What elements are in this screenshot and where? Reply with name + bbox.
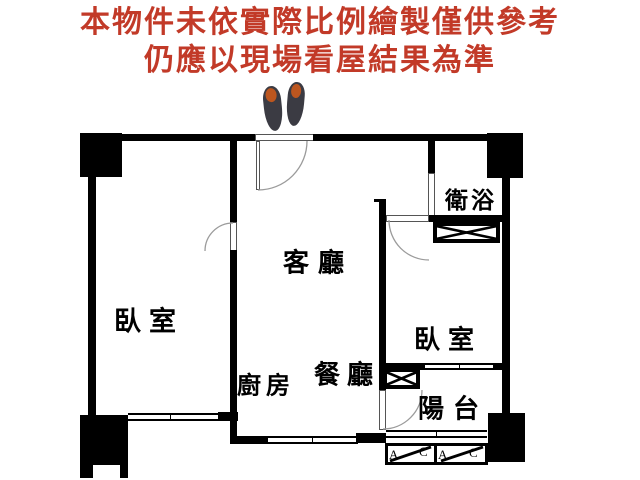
window-bedroom-left [128,413,218,421]
wall-bathroom-left [428,141,435,173]
door-leaf-entry [256,141,260,190]
room-label-bedroom-right: 臥室 [414,320,482,357]
window-divider [312,438,313,442]
ac-letter: A [389,448,398,461]
column-notch [93,465,120,478]
left-shoe-icon [262,85,285,132]
door-arc-entry [258,141,307,190]
room-label-balcony: 陽台 [418,389,488,426]
ac-letter: C [469,446,478,459]
door-leaf-bedroom-right [386,215,429,222]
disclaimer-line1: 本物件未依實際比例繪製僅供參考 [0,4,640,42]
room-label-kitchen: 廚房 [237,366,295,401]
column-bottom-right [488,413,525,462]
floorplan-page: 本物件未依實際比例繪製僅供參考 仍應以現場看屋結果為準 [0,0,640,480]
wall-kitchen-bottom-left [230,436,270,444]
ac-letter: C [419,445,428,458]
wall-left [88,177,96,415]
wall-interior-1-upper [230,134,237,222]
room-label-dining: 餐廳 [314,355,380,392]
ac-letter: A [438,448,447,461]
wall-bedroom-right-bottom-right [493,363,510,370]
wall-right [502,178,510,414]
wall-interior-2 [379,199,386,390]
wall-bathroom-bottom [429,215,510,222]
window-balcony [386,430,487,438]
door-leaf-bathroom [428,173,435,216]
door-leaf-bedroom-left [230,222,237,251]
wall-kitchen-bottom-right [356,433,386,443]
window-divider [170,415,171,419]
door-arc-balcony [383,390,422,429]
entry-threshold [255,134,314,141]
crossed-box-icon-balcony-storage [383,368,420,389]
room-label-bathroom: 衛浴 [445,181,497,215]
column-top-left [80,133,122,177]
ac-unit-divider [434,445,437,463]
shoe-insole [291,84,302,99]
crossed-box-icon-bathroom-storage [433,222,500,243]
wall-interior-1-lower [230,250,237,444]
window-divider [459,365,460,368]
room-label-living: 客廳 [283,243,353,280]
wall-top-right [313,134,488,141]
wall-interior-2-cap [374,199,386,202]
shoes-icon [262,82,308,132]
door-arc-bedroom-right [389,220,429,260]
door-leaf-balcony [379,390,386,430]
right-shoe-icon [285,81,306,126]
door-arc-bedroom-left [205,223,233,251]
shoe-insole [265,88,277,103]
window-kitchen [268,436,358,444]
window-divider [436,432,437,436]
window-bedroom-right [425,363,493,370]
column-top-right [487,133,523,178]
room-label-bedroom-left: 臥室 [114,300,184,339]
disclaimer-line2: 仍應以現場看屋結果為準 [0,42,640,80]
disclaimer: 本物件未依實際比例繪製僅供參考 仍應以現場看屋結果為準 [0,4,640,80]
